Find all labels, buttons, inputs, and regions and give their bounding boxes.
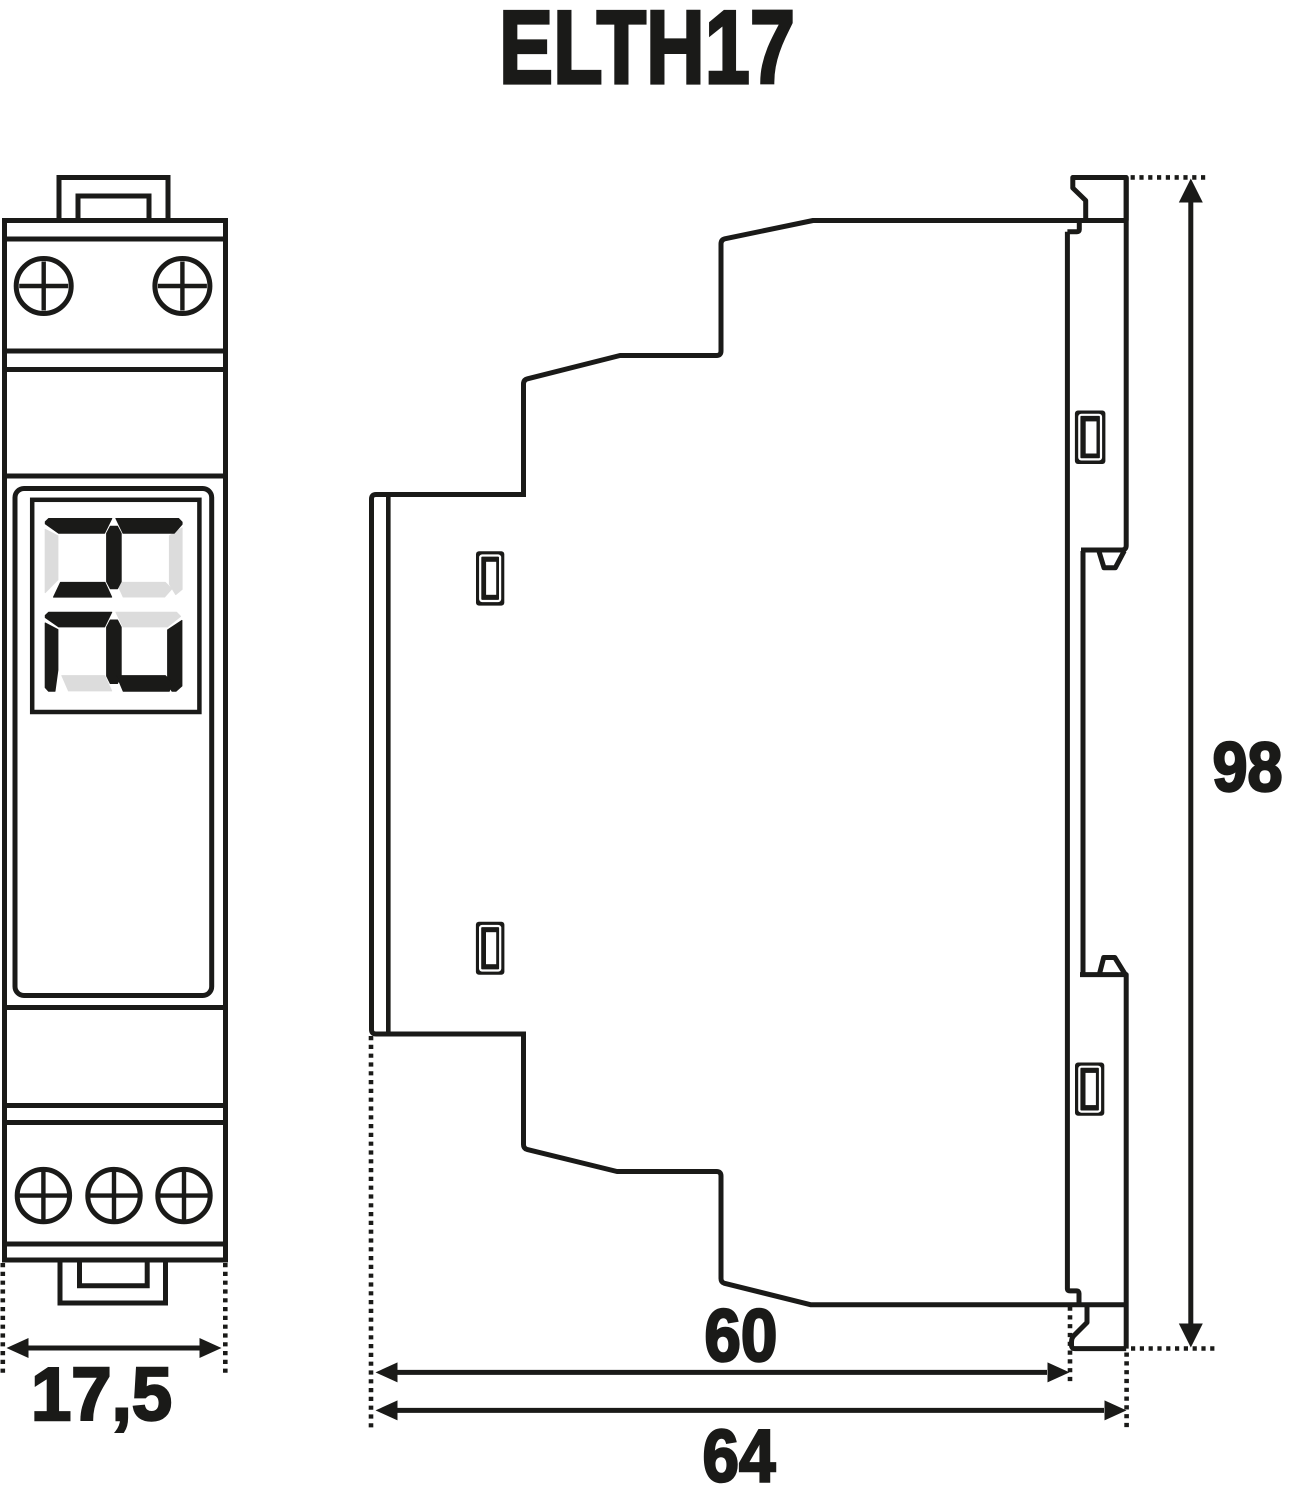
svg-text:64: 64 (703, 1415, 776, 1498)
svg-text:ELTH17: ELTH17 (499, 0, 795, 106)
svg-text:17,5: 17,5 (31, 1352, 172, 1436)
svg-text:98: 98 (1213, 728, 1283, 806)
svg-text:60: 60 (704, 1294, 777, 1377)
